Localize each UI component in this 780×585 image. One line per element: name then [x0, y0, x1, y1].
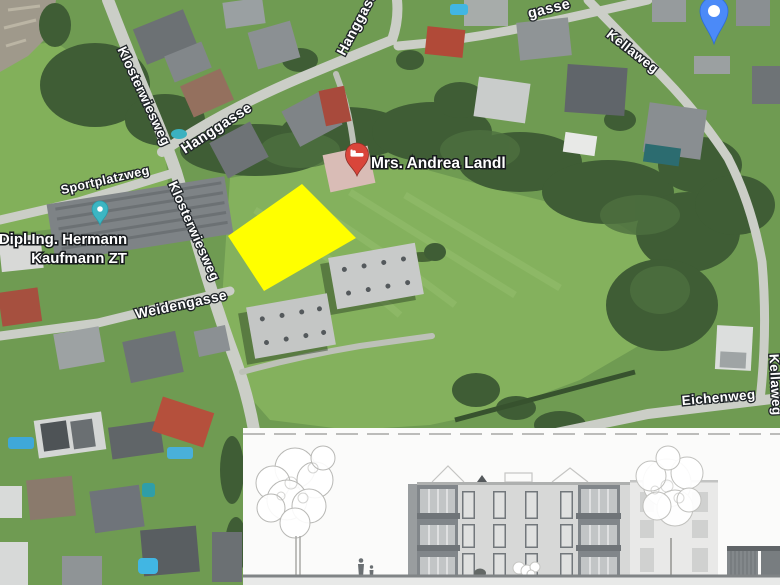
- tree-trunk: [296, 536, 300, 576]
- trampoline: [171, 129, 187, 139]
- dot-icon: [97, 206, 103, 212]
- ground-line: [243, 575, 780, 578]
- main-building: [408, 466, 630, 577]
- poi-label-andrea-landl: Mrs. Andrea Landl: [371, 155, 506, 172]
- balcony-slab: [417, 545, 460, 551]
- poi-label-kaufmann-line1: Dipl.Ing. Hermann: [0, 231, 127, 248]
- blue-map-pin[interactable]: [700, 0, 728, 44]
- building-elevation-drawing: [243, 428, 780, 585]
- dot-icon: [708, 5, 720, 17]
- side-wall: [408, 484, 417, 577]
- balcony-bay-middle: [576, 485, 621, 577]
- figure-adult: [358, 558, 364, 577]
- balcony-slab: [576, 513, 621, 519]
- balcony-slab: [417, 513, 460, 519]
- map-viewport[interactable]: Klosterwiesweg Klosterwiesweg Hanggasse …: [0, 0, 780, 585]
- roof-vent: [477, 475, 487, 482]
- tree-sketch-left: [256, 446, 335, 576]
- poi-label-kaufmann-line2: Kaufmann ZT: [31, 250, 127, 267]
- street-label-kellaweg-right: Kellaweg: [766, 354, 780, 416]
- roof-gable-right: [552, 468, 588, 482]
- balcony-slab: [576, 545, 621, 551]
- elevation-inset: [243, 428, 780, 585]
- carport-structure: [727, 546, 780, 577]
- road-hanggasse-north: [392, 0, 397, 40]
- balcony-bay-left: [417, 485, 460, 577]
- ground-strip: [243, 578, 780, 585]
- roof-gable-left: [432, 466, 464, 482]
- roof-box: [505, 473, 532, 482]
